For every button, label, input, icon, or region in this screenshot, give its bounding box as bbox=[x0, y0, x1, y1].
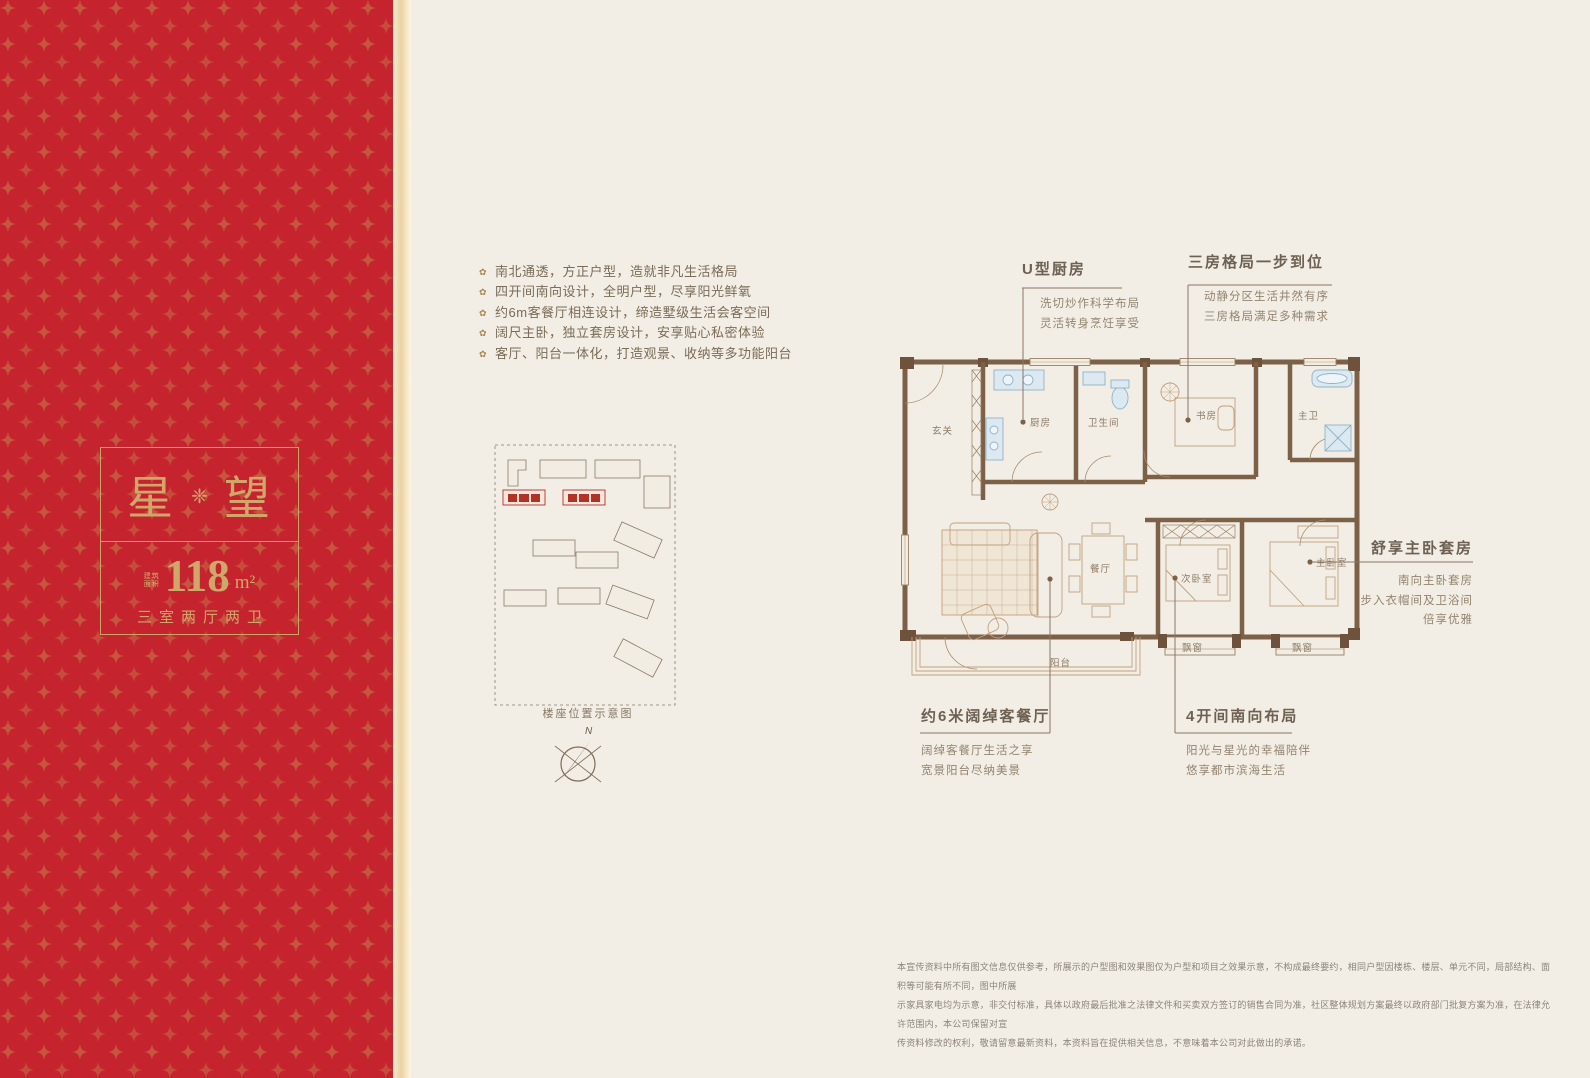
flower-bullet-icon: ✿ bbox=[479, 323, 487, 343]
compass-n-label: N bbox=[585, 726, 593, 737]
note-kitchen-line: 灵活转身烹饪享受 bbox=[1040, 315, 1140, 335]
disclaimer: 本宣传资料中所有图文信息仅供参考，所展示的户型图和效果图仅为户型和项目之效果示意… bbox=[897, 958, 1555, 1052]
feature-text: 阔尺主卧，独立套房设计，安享贴心私密体验 bbox=[495, 323, 765, 343]
note-living-dining-line: 宽景阳台尽纳美景 bbox=[921, 762, 1050, 782]
note-south-layout-line: 悠享都市滨海生活 bbox=[1186, 762, 1311, 782]
room-label-bath: 卫生间 bbox=[1088, 417, 1120, 429]
room-label-master-bedroom: 主卧室 bbox=[1316, 557, 1348, 569]
note-south-layout-title: 4开间南向布局 bbox=[1186, 705, 1311, 726]
note-three-rooms: 三房格局一步到位 动静分区生活井然有序 三房格局满足多种需求 bbox=[1188, 251, 1329, 327]
feature-item: ✿ 四开间南向设计，全明户型，尽享阳光鲜氧 bbox=[479, 282, 792, 302]
disclaimer-line: 传资料修改的权利，敬请留意最新资料，本资料旨在提供相关信息，不意味着本公司对此做… bbox=[897, 1034, 1555, 1053]
note-three-rooms-line: 三房格局满足多种需求 bbox=[1204, 308, 1329, 328]
feature-list: ✿ 南北通透，方正户型，造就非凡生活格局 ✿ 四开间南向设计，全明户型，尽享阳光… bbox=[479, 262, 792, 364]
room-label-dining: 餐厅 bbox=[1090, 563, 1111, 575]
note-master-suite-title: 舒享主卧套房 bbox=[1348, 537, 1473, 558]
room-label-balcony: 阳台 bbox=[1050, 657, 1071, 669]
flower-ornament-icon: ❈ bbox=[191, 484, 208, 509]
flower-bullet-icon: ✿ bbox=[479, 303, 487, 323]
room-label-bedroom2: 次卧室 bbox=[1181, 573, 1213, 585]
feature-text: 四开间南向设计，全明户型，尽享阳光鲜氧 bbox=[495, 282, 752, 302]
room-label-bay2: 飘窗 bbox=[1292, 642, 1313, 654]
feature-text: 约6m客餐厅相连设计，缔造墅级生活会客空间 bbox=[495, 303, 771, 323]
feature-text: 客厅、阳台一体化，打造观景、收纳等多功能阳台 bbox=[495, 344, 792, 364]
brand-char-right: 望 bbox=[224, 462, 272, 528]
brochure-page: 星 ❈ 望 建筑 面积 118 m² 三室两厅两卫 ✿ 南北通透，方正户型，造就… bbox=[0, 0, 1590, 1078]
compass-icon: N bbox=[545, 722, 615, 797]
note-kitchen-title: U型厨房 bbox=[1022, 258, 1140, 279]
flower-bullet-icon: ✿ bbox=[479, 262, 487, 282]
note-master-suite: 舒享主卧套房 南向主卧套房 步入衣帽间及卫浴间 倍享优雅 bbox=[1348, 537, 1473, 631]
area-label: 建筑 面积 bbox=[144, 573, 160, 589]
room-label-entry: 玄关 bbox=[932, 425, 953, 437]
feature-text: 南北通透，方正户型，造就非凡生活格局 bbox=[495, 262, 738, 282]
room-label-master-bath: 主卫 bbox=[1298, 410, 1319, 422]
note-living-dining: 约6米阔绰客餐厅 阔绰客餐厅生活之享 宽景阳台尽纳美景 bbox=[921, 705, 1050, 781]
feature-item: ✿ 南北通透，方正户型，造就非凡生活格局 bbox=[479, 262, 792, 282]
layout-spec: 三室两厅两卫 bbox=[101, 606, 298, 627]
note-master-suite-line: 南向主卧套房 bbox=[1348, 572, 1473, 592]
flower-bullet-icon: ✿ bbox=[479, 282, 487, 302]
note-master-suite-line: 步入衣帽间及卫浴间 bbox=[1348, 592, 1473, 612]
site-plan-diagram bbox=[488, 440, 688, 710]
brand-char-left: 星 bbox=[127, 462, 175, 528]
area-label-line2: 面积 bbox=[144, 581, 160, 589]
highlighted-buildings bbox=[503, 490, 605, 505]
brand-title: 星 ❈ 望 bbox=[101, 448, 298, 542]
flower-bullet-icon: ✿ bbox=[479, 344, 487, 364]
gold-edge-strip bbox=[393, 0, 411, 1078]
room-label-study: 书房 bbox=[1196, 410, 1217, 422]
floor-plan: 玄关 厨房 卫生间 书房 主卫 餐厅 次卧室 主卧室 阳台 飘窗 飘窗 bbox=[880, 340, 1380, 700]
disclaimer-line: 示家具家电均为示意，非交付标准，具体以政府最后批准之法律文件和买卖双方签订的销售… bbox=[897, 996, 1555, 1034]
room-label-kitchen: 厨房 bbox=[1030, 417, 1051, 429]
feature-item: ✿ 约6m客餐厅相连设计，缔造墅级生活会客空间 bbox=[479, 303, 792, 323]
note-living-dining-line: 阔绰客餐厅生活之享 bbox=[921, 742, 1050, 762]
feature-item: ✿ 客厅、阳台一体化，打造观景、收纳等多功能阳台 bbox=[479, 344, 792, 364]
siteplan-caption: 楼座位置示意图 bbox=[492, 705, 684, 721]
note-south-layout: 4开间南向布局 阳光与星光的幸福陪伴 悠享都市滨海生活 bbox=[1186, 705, 1311, 781]
note-master-suite-line: 倍享优雅 bbox=[1348, 611, 1473, 631]
note-south-layout-line: 阳光与星光的幸福陪伴 bbox=[1186, 742, 1311, 762]
note-kitchen: U型厨房 洗切炒作科学布局 灵活转身烹饪享受 bbox=[1022, 258, 1140, 334]
area-row: 建筑 面积 118 m² bbox=[101, 556, 298, 596]
brand-frame: 星 ❈ 望 建筑 面积 118 m² 三室两厅两卫 bbox=[100, 447, 299, 635]
red-panel: 星 ❈ 望 建筑 面积 118 m² 三室两厅两卫 bbox=[0, 0, 393, 1078]
disclaimer-line: 本宣传资料中所有图文信息仅供参考，所展示的户型图和效果图仅为户型和项目之效果示意… bbox=[897, 958, 1555, 996]
feature-item: ✿ 阔尺主卧，独立套房设计，安享贴心私密体验 bbox=[479, 323, 792, 343]
area-value: 118 bbox=[165, 556, 230, 596]
note-three-rooms-title: 三房格局一步到位 bbox=[1188, 251, 1329, 272]
note-three-rooms-line: 动静分区生活井然有序 bbox=[1204, 288, 1329, 308]
area-unit: m² bbox=[235, 570, 255, 596]
area-label-line1: 建筑 bbox=[144, 573, 160, 581]
note-kitchen-line: 洗切炒作科学布局 bbox=[1040, 295, 1140, 315]
note-living-dining-title: 约6米阔绰客餐厅 bbox=[921, 705, 1050, 726]
room-label-bay1: 飘窗 bbox=[1182, 642, 1203, 654]
